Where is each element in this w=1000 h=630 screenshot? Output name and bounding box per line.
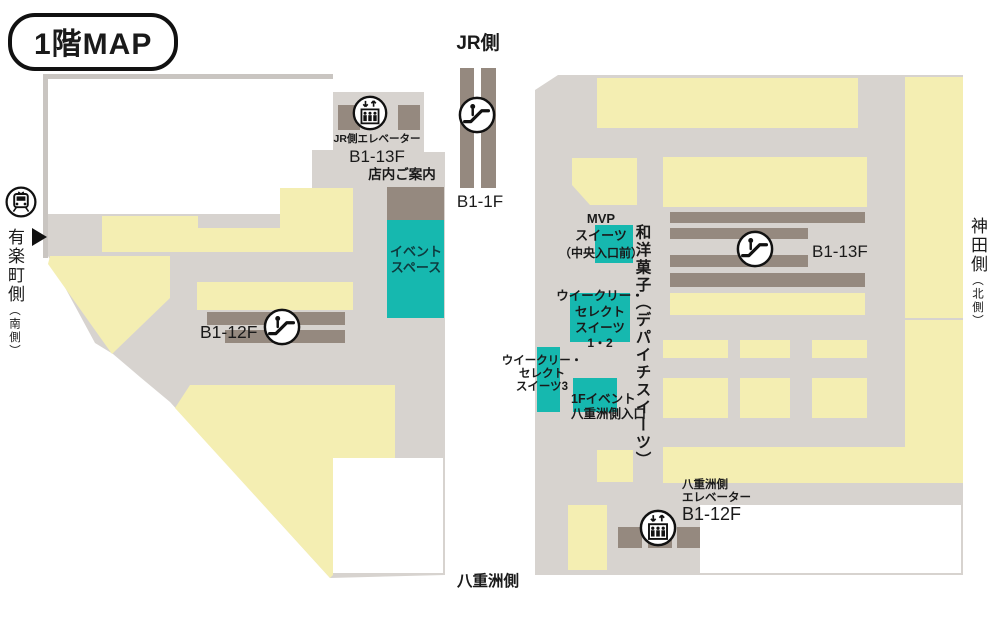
facility-block (387, 187, 444, 220)
event-entrance-line1: 1Fイベント (571, 392, 636, 407)
escalator-bar (670, 212, 865, 223)
floor-map-1f: JR側エレベーター B1-13F 店内ご案内 イベント スペース B1-12F (0, 0, 1000, 630)
elevator-icon (352, 95, 388, 131)
shop-block (905, 77, 963, 483)
mvp-label-line3: （中央入口前） (559, 246, 643, 260)
shop-block (812, 340, 867, 358)
weekly12-line4: 1・2 (587, 336, 612, 350)
kanda-side-label: 神田側（北側） (969, 217, 986, 357)
event-space-label-line2: スペース (391, 260, 441, 275)
mvp-label-line2: スイーツ (575, 228, 627, 243)
left-building-border-top (43, 74, 333, 79)
yurakucho-main: 有楽町側 (5, 228, 24, 304)
weekly3-line1: ウイークリー・ (502, 355, 583, 369)
elevator-bank-block (677, 527, 700, 548)
yaesu-elevator-line1: 八重洲側 (682, 479, 728, 493)
shop-block (568, 505, 607, 570)
shop-block (597, 78, 858, 128)
shop-block (597, 450, 633, 482)
shop-block (663, 157, 867, 207)
yurakucho-side-label: 有楽町側（南側） (6, 228, 23, 398)
shop-block (670, 293, 865, 315)
confectionery-vertical-label: 和洋菓子（デパイチスイーツ） (634, 224, 650, 476)
shop-block (663, 447, 963, 483)
weekly12-line2: セレクト (575, 305, 625, 320)
shop-block (663, 340, 728, 358)
elevator-icon (639, 509, 677, 547)
shop-block (197, 282, 353, 310)
event-space-label-line1: イベント (390, 244, 442, 259)
shop-block (740, 378, 790, 418)
escalator-icon (736, 230, 774, 268)
jr-elevator-floors: B1-13F (349, 147, 405, 167)
right-escalator-floors: B1-13F (812, 242, 868, 262)
kanda-main: 神田側 (968, 217, 987, 274)
escalator-icon (458, 96, 496, 134)
jr-elevator-label: JR側エレベーター (334, 133, 421, 145)
elevator-bank-block (398, 105, 420, 130)
escalator-icon (263, 308, 301, 346)
jr-side-label: JR側 (456, 33, 499, 55)
yaesu-side-label: 八重洲側 (457, 573, 519, 591)
train-icon (5, 186, 37, 218)
kanda-sub: （北側） (971, 274, 983, 328)
shop-block (812, 378, 867, 418)
left-building-void-notch (333, 458, 443, 573)
shop-block (663, 378, 728, 418)
escalator-bar (670, 273, 865, 287)
mvp-label-line1: MVP (587, 211, 615, 226)
weekly12-line3: スイーツ (575, 321, 625, 336)
page-title: 1階MAP (8, 13, 178, 71)
event-entrance-line2: 八重洲側入口 (571, 407, 646, 422)
entrance-arrow-icon (32, 228, 47, 246)
left-building-void-strip (312, 79, 333, 150)
left-building-void-upper (48, 79, 312, 214)
yaesu-elevator-floors: B1-12F (682, 504, 741, 525)
weekly3-line2: セレクト (519, 368, 565, 382)
store-guide-label: 店内ご案内 (368, 167, 436, 183)
shop-block (740, 340, 790, 358)
shop-divider (905, 318, 963, 320)
weekly3-line3: スイーツ3 (516, 381, 568, 395)
left-escalator-floors: B1-12F (200, 322, 257, 343)
yurakucho-sub: （南側） (8, 304, 20, 358)
jr-strip-floors: B1-1F (457, 192, 503, 212)
weekly12-line1: ウイークリー・ (556, 289, 644, 304)
